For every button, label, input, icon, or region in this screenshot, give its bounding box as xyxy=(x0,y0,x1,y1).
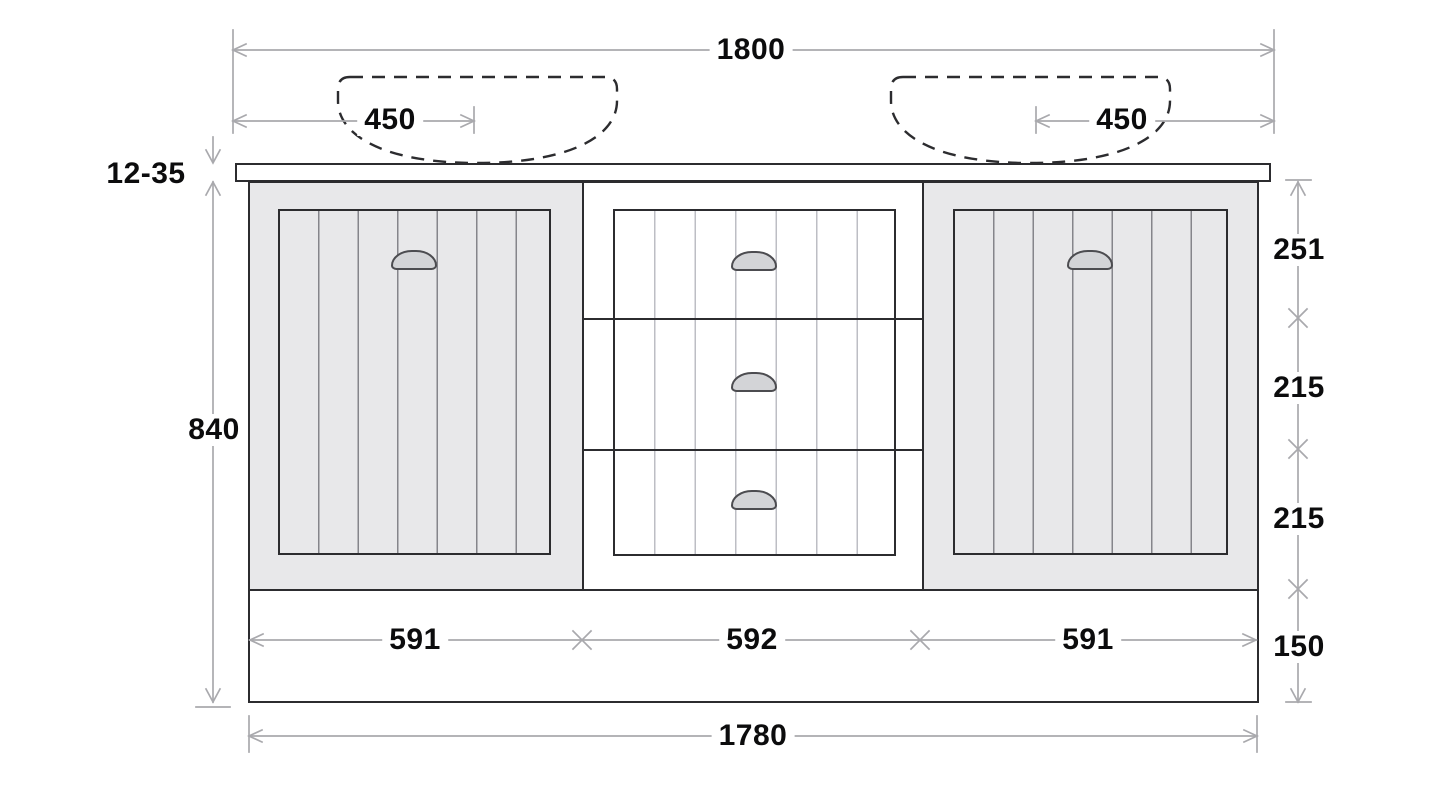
dim-middle-drawer-height: 215 xyxy=(1266,372,1332,404)
right-door-handle-icon xyxy=(1067,250,1113,270)
dim-cabinet-height: 840 xyxy=(181,414,247,446)
drawer-handle-top-icon xyxy=(731,251,777,271)
dim-plinth-height: 150 xyxy=(1266,631,1332,663)
dim-left-section-width: 591 xyxy=(382,624,448,656)
dim-overall-width: 1800 xyxy=(710,34,793,66)
plinth-line xyxy=(248,589,1259,591)
dim-right-section-width: 591 xyxy=(1055,624,1121,656)
drawer-handle-middle-icon xyxy=(731,372,777,392)
dim-right-sink-offset: 450 xyxy=(1089,104,1155,136)
left-door-handle-icon xyxy=(391,250,437,270)
dim-top-drawer-height: 251 xyxy=(1266,234,1332,266)
countertop xyxy=(235,163,1271,182)
vanity-technical-drawing: 1800 450 450 12-35 840 251 215 215 150 5… xyxy=(0,0,1436,792)
dim-left-sink-offset: 450 xyxy=(357,104,423,136)
drawer-handle-bottom-icon xyxy=(731,490,777,510)
dim-lower-drawer-height: 215 xyxy=(1266,503,1332,535)
dim-center-section-width: 592 xyxy=(719,624,785,656)
dim-countertop-thickness: 12-35 xyxy=(99,158,192,190)
dim-carcass-width: 1780 xyxy=(712,720,795,752)
